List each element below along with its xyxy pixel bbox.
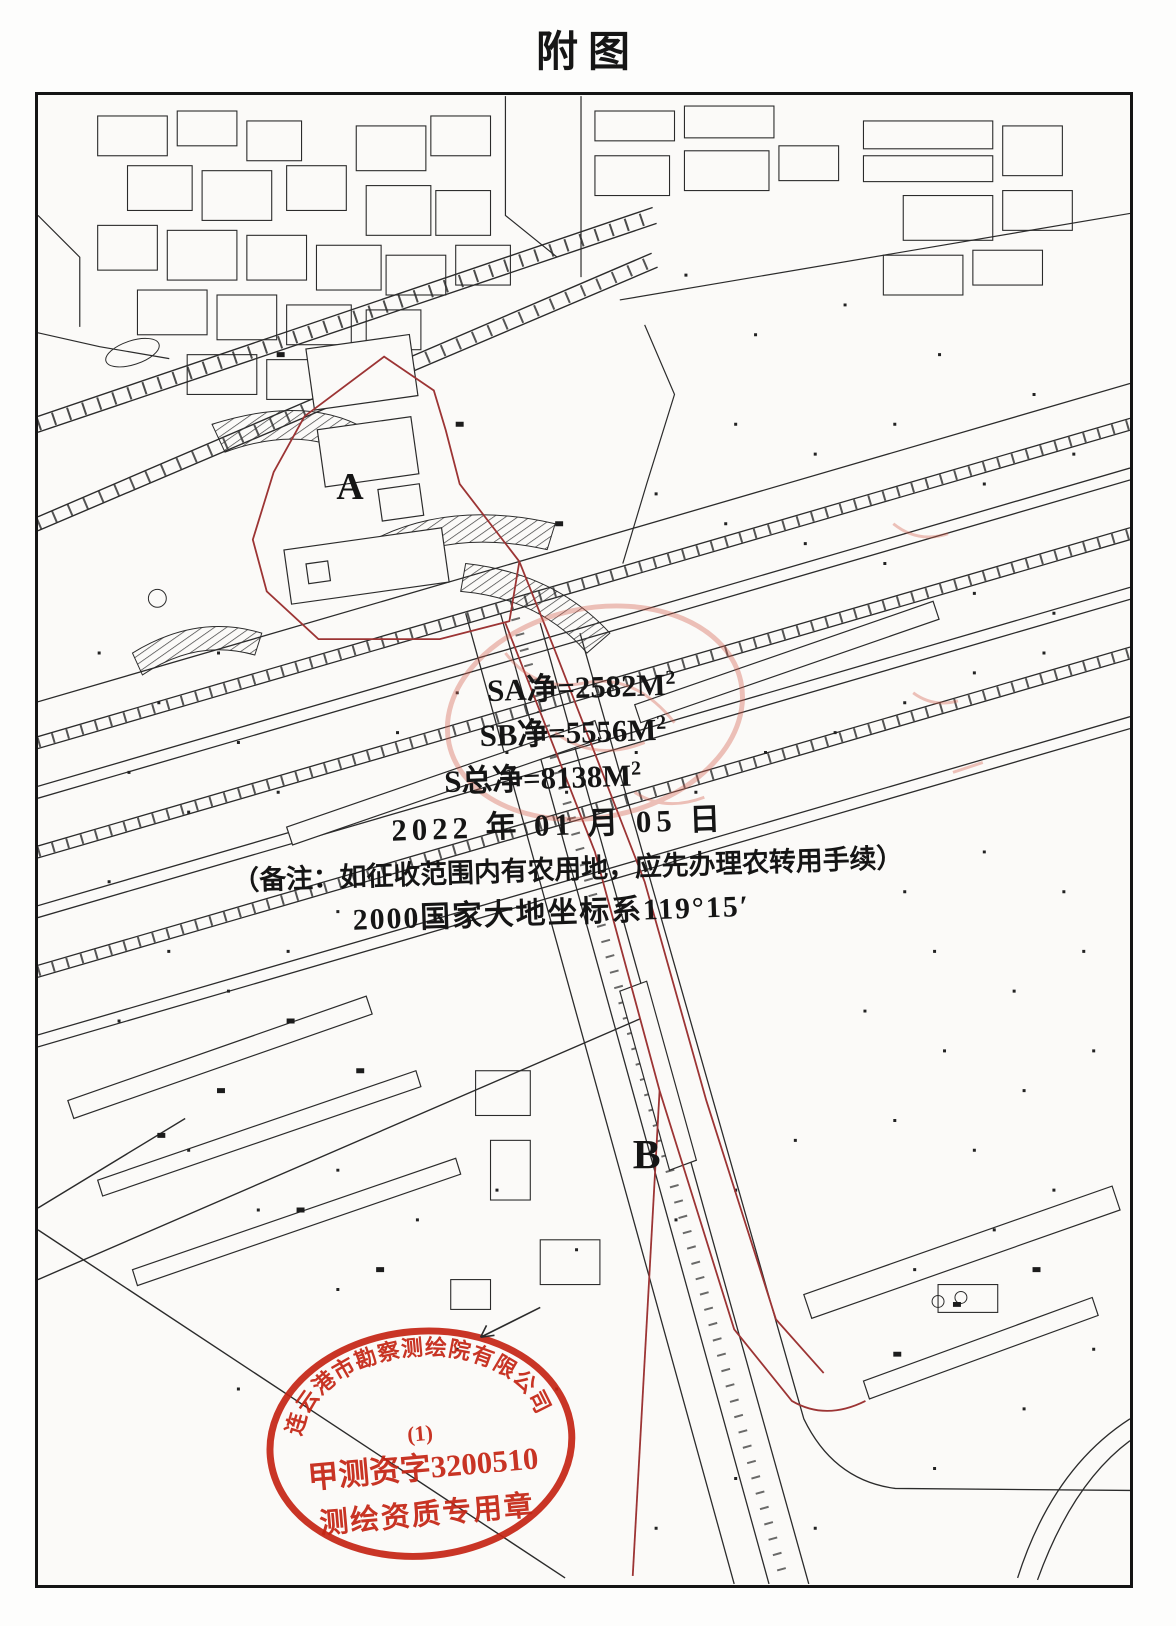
note-label: （备注：如征收范围内有农用地，应先办理农转用手续） — [232, 842, 904, 896]
datum-label: 2000国家大地坐标系119°15′ — [352, 890, 750, 937]
page-title: 附图 — [0, 18, 1176, 79]
certification-stamp: 连云港市勘察测绘院有限公司 (1) 甲测资字3200510 测绘资质专用章 — [261, 1319, 582, 1569]
survey-map: A B SA净=2582M2 SB净=5556M2 S总净=8138M2 202… — [38, 95, 1130, 1585]
stamp-license-number: 甲测资字3200510 — [306, 1440, 539, 1495]
parcel-b-label: B — [633, 1132, 661, 1178]
scanned-survey-page: 附图 — [0, 0, 1176, 1626]
map-frame: A B SA净=2582M2 SB净=5556M2 S总净=8138M2 202… — [35, 92, 1133, 1588]
annotation-block: SA净=2582M2 SB净=5556M2 S总净=8138M2 2022 年 … — [225, 659, 905, 941]
area-sa-label: SA净=2582M2 — [487, 667, 677, 708]
area-total-label: S总净=8138M2 — [444, 757, 642, 799]
stamp-number-line: (1) — [406, 1421, 433, 1447]
parcel-a-label: A — [336, 466, 363, 508]
stamp-pointer-arrow — [481, 1307, 541, 1337]
area-sb-label: SB净=5556M2 — [479, 712, 667, 753]
date-label: 2022 年 01 月 05 日 — [391, 802, 726, 848]
